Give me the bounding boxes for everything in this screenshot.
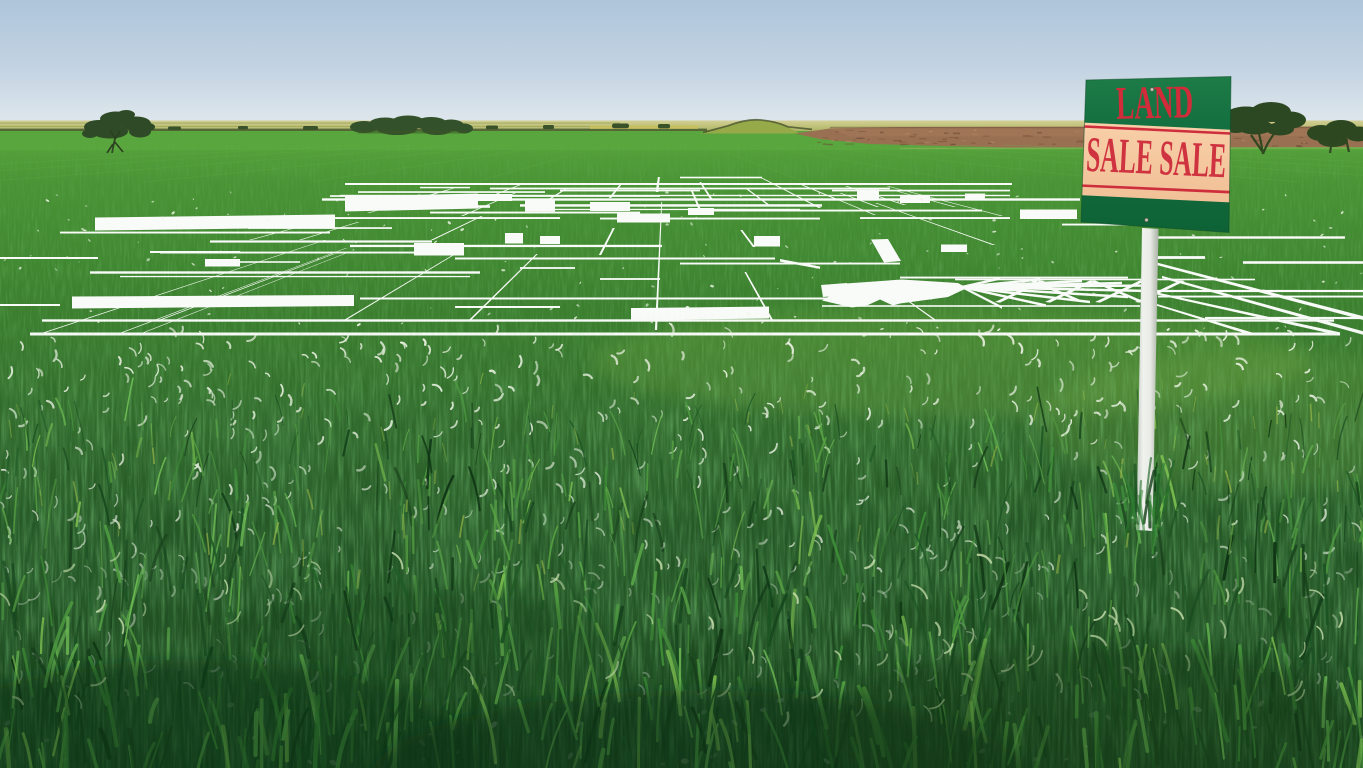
svg-text:LAND: LAND [1116, 76, 1194, 130]
svg-text:SALE SALE: SALE SALE [1085, 126, 1227, 189]
